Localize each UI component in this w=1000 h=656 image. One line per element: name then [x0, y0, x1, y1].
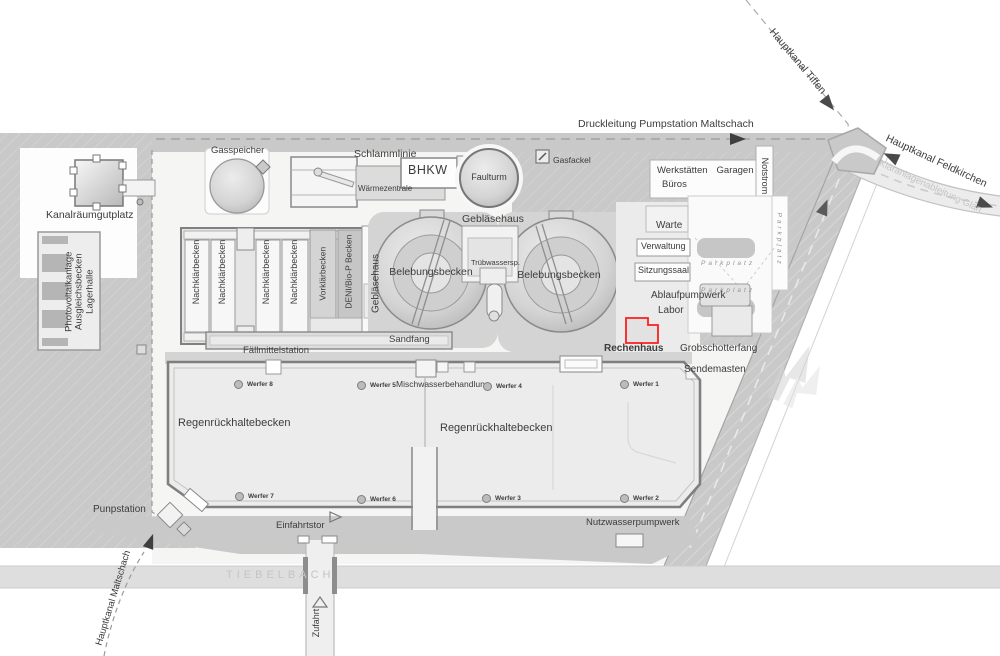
faulturm-label: Faulturm: [464, 173, 514, 183]
pumpstation-label: Punpstation: [93, 504, 146, 515]
zufahrt-label: Zufahrt: [312, 583, 322, 656]
nachklaerbecken-label: Nachklärbecken: [262, 222, 272, 322]
parkplatz-vertical-label: Parkplatz: [775, 190, 782, 290]
denibio-becken-label: DENI/Bio-P Becken: [344, 222, 353, 322]
parking-lot: [697, 238, 755, 258]
parkplatz-label: Parkplatz: [701, 260, 755, 267]
labor-label: Labor: [658, 305, 684, 316]
bhkw-label: BHKW: [408, 164, 448, 178]
gasspeicher-structure: [205, 148, 270, 214]
werfer-dot-icon: [620, 380, 629, 389]
werfer-1-marker: Werfer 1: [620, 380, 659, 389]
werfer-2-marker: Werfer 2: [620, 494, 659, 503]
nachklaerbecken-label: Nachklärbecken: [218, 222, 228, 322]
gasfackel-label: Gasfackel: [553, 156, 591, 165]
clarifier-block: [181, 226, 390, 346]
belebungsbecken-label: Belebungsbecken: [383, 267, 479, 279]
site-plan: Druckleitung Pumpstation Maltschach Haup…: [0, 0, 1000, 656]
schlammlinie-building: [291, 157, 357, 207]
werfer-dot-icon: [357, 381, 366, 390]
warte-label: Warte: [656, 220, 682, 231]
mischwasserbehandlung-label: Mischwasserbehandlung: [396, 380, 490, 389]
rechenhaus-label[interactable]: Rechenhaus: [604, 343, 663, 354]
einfahrtstor-label: Einfahrtstor: [276, 521, 325, 531]
belebungsbecken-label: Belebungsbecken: [511, 270, 607, 282]
werkstaetten-garagen-label: Werkstätten Garagen: [657, 166, 754, 176]
sandfang-label: Sandfang: [389, 335, 430, 345]
grobschotterfang-label: Grobschotterfang: [680, 343, 757, 354]
werfer-dot-icon: [620, 494, 629, 503]
faellmittelstation-label: Fällmittelstation: [243, 346, 309, 356]
werfer-dot-icon: [235, 492, 244, 501]
nutzwasserpumpwerk-label: Nutzwasserpumpwerk: [586, 518, 679, 528]
nachklaerbecken-label: Nachklärbecken: [192, 222, 202, 322]
werfer-8-marker: Werfer 8: [234, 380, 273, 389]
nachklaerbecken-label: Nachklärbecken: [290, 222, 300, 322]
sendemasten-label: Sendemasten: [684, 364, 746, 375]
werfer-4-marker: Werfer 4: [483, 382, 522, 391]
werfer-5-marker: Werfer 5: [357, 381, 396, 390]
vorklaerbecken-label: Vorklärbecken: [318, 224, 327, 324]
werfer-3-marker: Werfer 3: [482, 494, 521, 503]
mischwasser-outlet: [416, 360, 436, 377]
truebwassersp-label: Trübwassersp.: [471, 259, 520, 267]
werfer-dot-icon: [482, 494, 491, 503]
werfer-dot-icon: [234, 380, 243, 389]
werfer-7-marker: Werfer 7: [235, 492, 274, 501]
notstrom-label: Notstrom: [759, 141, 769, 211]
regenrueckhaltebecken-label: Regenrückhaltebecken: [178, 417, 291, 429]
ablaufpumpwerk-label: Ablaufpumpwerk: [651, 290, 725, 301]
kanalraeumgutplatz-building: [75, 160, 123, 206]
regenrueckhaltebecken-label: Regenrückhaltebecken: [440, 422, 553, 434]
werfer-dot-icon: [483, 382, 492, 391]
bueros-label: Büros: [662, 180, 687, 190]
kanalraeumgutplatz-label: Kanalräumgutplatz: [46, 210, 134, 222]
werfer-dot-icon: [357, 495, 366, 504]
gasspeicher-label: Gasspeicher: [211, 146, 264, 156]
grobschotterfang-building: [712, 306, 752, 336]
werfer-6-marker: Werfer 6: [357, 495, 396, 504]
tiebelbach-label: TIEBELBACH: [226, 569, 334, 581]
gasfackel-icon: [536, 150, 549, 163]
schlammlinie-label: Schlammlinie: [354, 149, 416, 161]
geblaesehaus-label: Gebläsehaus: [462, 214, 524, 226]
nutzwasserpumpwerk-building: [616, 534, 643, 547]
tiebelbach-stream: [0, 566, 1000, 588]
waermezentrale-label: Wärmezentrale: [358, 185, 412, 194]
geblaesehaus-vertical-label: Gebläsehaus: [371, 234, 382, 334]
sitzungssaal-label: Sitzungssaal: [638, 266, 689, 276]
plan-drawing: [0, 0, 1000, 656]
verwaltung-label: Verwaltung: [641, 242, 686, 252]
photovoltaik-label: Photovoltaikanlage Ausgleichsbecken Lage…: [64, 232, 95, 352]
druckleitung-label: Druckleitung Pumpstation Maltschach: [578, 119, 754, 131]
